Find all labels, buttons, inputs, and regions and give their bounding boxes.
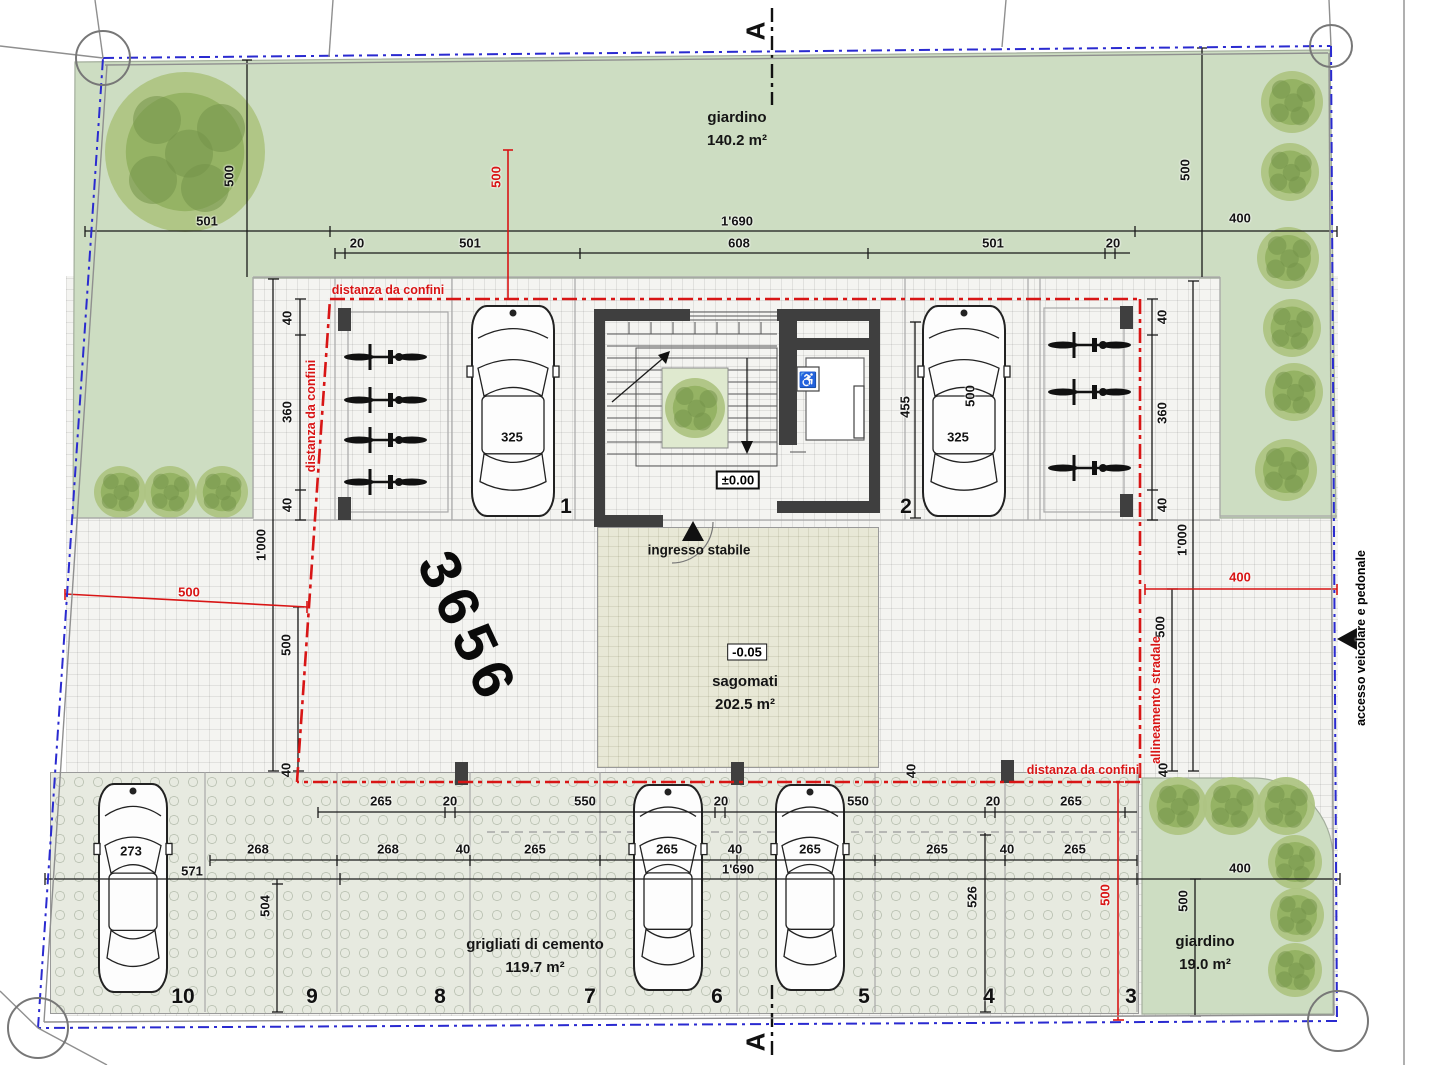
dimension-label: 40 (280, 311, 295, 325)
post (338, 308, 351, 331)
dimension-label: 400 (1229, 211, 1251, 226)
garden-top-area: 140.2 m² (707, 132, 767, 149)
dimension-label: 1'000 (1175, 524, 1190, 556)
bicycle-icon (344, 427, 427, 453)
garden-top-name: giardino (707, 109, 766, 126)
dimension-label: 40 (1156, 763, 1171, 777)
dimension-label: 325 (501, 430, 523, 445)
plaza-label: sagomati 202.5 m² (712, 670, 778, 717)
wheelchair-icon: ♿ (799, 371, 818, 389)
dimension-label: 265 (1060, 794, 1082, 809)
plaza-area: 202.5 m² (715, 696, 775, 713)
parking-stall-number: 10 (171, 985, 194, 1009)
plan-linework: ♿ (0, 0, 1440, 1065)
section-marker-bottom: A (741, 1033, 772, 1052)
dimension-label: 20 (1106, 236, 1120, 251)
dimension-label: 400 (1229, 861, 1251, 876)
garden-corner-name: giardino (1175, 933, 1234, 950)
dimension-label: 273 (120, 844, 142, 859)
tree-icon (94, 466, 146, 518)
garden-corner-area: 19.0 m² (1179, 956, 1231, 973)
parking-stall-number: 8 (434, 985, 446, 1009)
dimension-label: 501 (982, 236, 1004, 251)
tree-icon (144, 466, 196, 518)
annotation-label: allineamento stradale (1149, 636, 1163, 764)
wall (779, 321, 797, 445)
parking-stall-number: 2 (900, 495, 912, 519)
dimension-label: 1'000 (254, 529, 269, 561)
dimension-label: 40 (728, 842, 742, 857)
parking-stall-number: 3 (1125, 985, 1137, 1009)
parking-stall-number: 5 (858, 985, 870, 1009)
garden-top-label: giardino 140.2 m² (707, 106, 767, 153)
dimension-label: 268 (247, 842, 269, 857)
tree-icon (1261, 71, 1323, 133)
dimension-label: 40 (456, 842, 470, 857)
wall (797, 338, 869, 350)
dimension-label: 265 (799, 842, 821, 857)
grid-paving-name: grigliati di cemento (466, 936, 604, 953)
dimension-label: 400 (1229, 570, 1251, 585)
dimension-label: 455 (898, 396, 913, 418)
plaza-level-badge: -0.05 (727, 644, 767, 661)
tree-icon (1265, 363, 1323, 421)
dimension-label: 1'690 (722, 862, 754, 877)
bicycle-icon (1048, 455, 1131, 481)
dimension-label: 526 (965, 886, 980, 908)
tree-icon (1255, 439, 1317, 501)
parking-stall-number: 7 (584, 985, 596, 1009)
dimension-label: 1'690 (721, 214, 753, 229)
bicycle-icon (344, 469, 427, 495)
dimension-label: 360 (1155, 402, 1170, 424)
bicycle-icon (1048, 332, 1131, 358)
annotation-label: distanza da confini (1027, 763, 1140, 777)
dimension-label: 40 (904, 764, 919, 778)
bicycle-icon (344, 387, 427, 413)
tree-icon (1203, 777, 1261, 835)
dimension-label: 40 (1000, 842, 1014, 857)
dimension-label: 504 (258, 895, 273, 917)
wall (594, 309, 605, 527)
building-entrance-label: ingresso stabile (648, 543, 751, 558)
dimension-label: 40 (1155, 498, 1170, 512)
annotation-label: distanza da confini (332, 283, 445, 297)
dimension-label: 500 (1153, 616, 1168, 638)
wall (594, 309, 690, 321)
tree-icon (196, 466, 248, 518)
tree-icon (1268, 943, 1322, 997)
building-level-badge: ±0.00 (716, 471, 760, 490)
dimension-label: 325 (947, 430, 969, 445)
wall (594, 515, 663, 527)
parking-stall-number: 6 (711, 985, 723, 1009)
entrance-arrow-icon (682, 521, 704, 541)
annotation-label: accesso veicolare e pedonale (1354, 550, 1368, 726)
dimension-label: 500 (178, 585, 200, 600)
dimension-label: 501 (196, 214, 218, 229)
dimension-label: 500 (1178, 159, 1193, 181)
dimension-label: 20 (986, 794, 1000, 809)
car-icon (918, 306, 1010, 516)
section-marker-top: A (741, 22, 772, 41)
post (1120, 306, 1133, 329)
car-icon (771, 785, 849, 990)
dimension-label: 268 (377, 842, 399, 857)
dimension-label: 500 (963, 385, 978, 407)
dimension-label: 571 (181, 864, 203, 879)
tree-icon (1257, 777, 1315, 835)
grid-paving-label: grigliati di cemento 119.7 m² (466, 933, 604, 980)
grid-paving-area: 119.7 m² (505, 959, 564, 976)
tree-icon (1263, 299, 1321, 357)
dimension-label: 265 (370, 794, 392, 809)
dimension-label: 500 (222, 165, 237, 187)
dimension-label: 20 (714, 794, 728, 809)
dimension-label: 500 (1098, 884, 1113, 906)
dimension-label: 608 (728, 236, 750, 251)
dimension-label: 40 (279, 763, 294, 777)
car-icon (94, 784, 172, 992)
dimension-label: 500 (1176, 890, 1191, 912)
dimension-label: 40 (1155, 310, 1170, 324)
dimension-label: 40 (280, 498, 295, 512)
tree-icon (665, 378, 725, 438)
parking-stall-number: 1 (560, 495, 572, 519)
plaza-name: sagomati (712, 673, 778, 690)
tree-icon (1149, 777, 1207, 835)
site-plan: ♿ giardino 140.2 m² giardino 19.0 m² gri… (0, 0, 1440, 1065)
bicycle-icon (344, 344, 427, 370)
annotation-label: distanza da confini (304, 360, 318, 473)
dimension-label: 550 (847, 794, 869, 809)
wall (777, 501, 880, 513)
dimension-label: 20 (443, 794, 457, 809)
dimension-label: 265 (1064, 842, 1086, 857)
survey-point (1308, 991, 1368, 1051)
dimension-label: 265 (926, 842, 948, 857)
dimension-label: 500 (489, 166, 504, 188)
tree-icon (105, 72, 265, 232)
dimension-label: 265 (656, 842, 678, 857)
car-icon (467, 306, 559, 516)
dimension-label: 550 (574, 794, 596, 809)
dimension-label: 20 (350, 236, 364, 251)
dimension-label: 501 (459, 236, 481, 251)
tree-icon (1261, 143, 1319, 201)
dimension-label: 500 (279, 634, 294, 656)
garden-corner-label: giardino 19.0 m² (1175, 930, 1234, 977)
tree-icon (1270, 888, 1324, 942)
bicycle-icon (1048, 379, 1131, 405)
parking-stall-number: 9 (306, 985, 318, 1009)
dimension-label: 265 (524, 842, 546, 857)
wall (777, 309, 880, 321)
post (1001, 760, 1014, 783)
post (1120, 494, 1133, 517)
dimension-label: 360 (280, 401, 295, 423)
post (338, 497, 351, 520)
car-icon (629, 785, 707, 990)
parking-stall-number: 4 (983, 985, 995, 1009)
tree-icon (1257, 227, 1319, 289)
tree-icon (1268, 835, 1322, 889)
wall (869, 309, 880, 513)
